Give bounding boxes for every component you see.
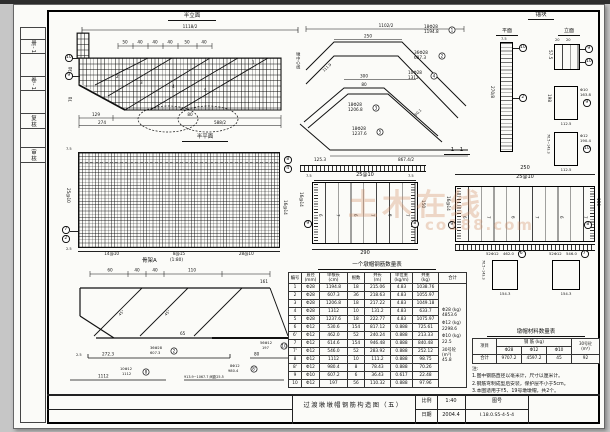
dim-label: 20 <box>555 38 560 42</box>
cell: 4597.2 <box>522 355 547 364</box>
cell: 0.888 <box>391 324 413 332</box>
cell: 980.4 <box>320 364 348 372</box>
bar-mark-circle: 2 <box>62 235 70 243</box>
cell: 6 <box>348 372 365 380</box>
cell: 4.83 <box>391 292 413 300</box>
bar-length: 462.0 <box>503 252 514 256</box>
bar-count: 52Φ12 <box>549 252 562 256</box>
dim-label: 112.5 <box>554 122 578 126</box>
anchor-bar-detail-b <box>554 132 578 166</box>
summary-group: Φ10 (kg)22.5 <box>440 334 465 345</box>
section2-right-ticks <box>590 188 594 240</box>
material-table-title: 墩帽材料数量表 <box>487 329 585 337</box>
cell: 0.888 <box>391 332 413 340</box>
cell: 817.12 <box>365 324 391 332</box>
rebar-table-title: 一个墩帽钢筋数量表 <box>318 262 436 270</box>
titleblock-top-line <box>47 394 600 396</box>
cell: Φ12 <box>302 364 320 372</box>
cell: 946.48 <box>365 340 391 348</box>
bar-mark-circle: 4 <box>433 74 436 79</box>
scale-value: 1:40 <box>437 399 465 405</box>
view-title-half-elevation: 半立面 <box>168 13 216 21</box>
section-bar-mark: 7 <box>583 216 588 219</box>
cell: 462.0 <box>320 332 348 340</box>
dim-label: 270/8 <box>490 86 494 98</box>
section1-teeth-strip <box>300 165 426 172</box>
drawing-no-value: I.18.0.S5-4-5-4 <box>466 413 528 418</box>
dim-label: 16@14 <box>446 196 450 211</box>
cell: 1038.76 <box>413 284 439 292</box>
angle-label: 45° <box>164 309 171 316</box>
cell: Φ10 <box>302 372 320 380</box>
cell: 0.888 <box>391 380 413 388</box>
cell: 4.83 <box>391 300 413 308</box>
margin-stamp-label: 审核 <box>29 149 37 162</box>
view-title-anchor-elevation: 立面 <box>558 29 580 36</box>
bar-mark-circle: 3 <box>375 106 378 111</box>
dim-label: 154.3 <box>492 292 518 296</box>
bar-count: 56Φ12 <box>260 341 272 345</box>
dim-label: 112.5 <box>554 168 578 172</box>
cell: 614.6 <box>320 340 348 348</box>
cell: 111.2 <box>365 356 391 364</box>
bar-mark-circle: 2 <box>519 94 527 102</box>
bar-mark-circle: 9 <box>65 72 73 80</box>
dim-total: 1118/2 <box>183 24 198 29</box>
col-header: 合计 <box>439 273 467 284</box>
dim-label: 40 <box>152 268 158 273</box>
section2-bar-marks: 676767 <box>462 200 588 234</box>
col-header: 直径 (mm) <box>302 273 320 284</box>
bar-length: 546.0 <box>566 252 577 256</box>
cell: 607.2 <box>320 372 348 380</box>
cell: 215.06 <box>365 284 391 292</box>
section-bar-mark: 6 <box>353 214 358 217</box>
cell: 4.83 <box>391 308 413 316</box>
titleblock-mid-line <box>47 409 292 410</box>
bar-length: 190.4 <box>580 139 591 143</box>
cell: 18 <box>348 300 365 308</box>
summary-cell: Φ28 (kg)4853.6Φ12 (kg)2298.6Φ10 (kg)22.5… <box>439 284 467 388</box>
date-label: 日期 <box>416 413 437 419</box>
cell: 222.77 <box>365 316 391 324</box>
bar-length: 1206.8 <box>348 107 363 112</box>
cell: Φ28 <box>302 292 320 300</box>
col-subheader: Φ10 <box>547 347 572 355</box>
bent-bar-details: 1102/2 250 300 80 867.4/2 125.3 111.9 50… <box>298 22 478 162</box>
dim-label: 125.3 <box>314 157 326 162</box>
margin-cell <box>20 162 46 423</box>
note-item: 1.图中钢筋直径以毫米计，尺寸以厘米计。 <box>472 373 569 380</box>
bar-mark-circle: 8 <box>584 221 592 229</box>
col-header: 单根长 (cm) <box>320 273 348 284</box>
row-label: 合计 <box>473 355 497 364</box>
cell: 131.2 <box>365 308 391 316</box>
bar-mark-circle: 9 <box>583 99 591 107</box>
elevation-drawing: 1118/2 50 40 40 40 50 40 2 3 4 5 1 30 70… <box>60 22 310 148</box>
view-title-half-plan: 半平面 <box>182 134 228 142</box>
cell: 1049.18 <box>413 300 439 308</box>
dim-label: 290 <box>348 251 382 257</box>
dim-label: 76.5~143.3 <box>481 260 484 280</box>
cell: 213.33 <box>413 332 439 340</box>
dim-line <box>314 180 416 181</box>
cell: 4.83 <box>391 284 413 292</box>
bar-length: 607.3 <box>150 351 160 355</box>
cell: 725.61 <box>413 324 439 332</box>
margin-stamp: 卷-1 <box>20 76 46 91</box>
cell: 0.888 <box>391 348 413 356</box>
angle-label: 45° <box>118 309 125 316</box>
cell: 0.888 <box>391 356 413 364</box>
col-header: 30号砼 (m³) <box>572 339 600 355</box>
col-header: 共长 (m) <box>365 273 391 284</box>
dim-label: 250 <box>505 166 545 172</box>
margin-cell <box>20 128 46 148</box>
bar-mark-circle: 9 <box>585 45 593 53</box>
dim-label: 20 <box>566 38 571 42</box>
dim-label: 40 <box>137 40 143 45</box>
dim-label: 25@10 <box>66 188 70 203</box>
bar-mark-circle: 8' <box>252 367 256 372</box>
cell: 252.12 <box>413 348 439 356</box>
section2-teeth-strip <box>455 244 595 251</box>
anchor-seat-outline <box>77 33 89 58</box>
cell: 5 <box>289 316 302 324</box>
col-header: 共重 (kg) <box>413 273 439 284</box>
dim-label: 1112 <box>98 374 109 379</box>
section2-left-ticks <box>457 188 461 240</box>
dim-label: 150 <box>421 200 425 208</box>
bar-mark: 4 <box>172 84 175 89</box>
bar-length: 163.8 <box>580 93 591 97</box>
dim-label: 40 <box>134 268 140 273</box>
cell: 10 <box>348 356 365 364</box>
dim-label: 198 <box>547 94 551 102</box>
bar-mark-circle: 10 <box>585 58 593 66</box>
cell: 217.22 <box>365 300 391 308</box>
dim-label: 80 <box>187 112 193 117</box>
cell: 8 <box>348 364 365 372</box>
cell: 1055.97 <box>413 292 439 300</box>
bar-mark-circle: 10 <box>281 344 287 349</box>
cell: 0.888 <box>391 364 413 372</box>
cell: 92 <box>572 355 600 364</box>
cell: 1075.97 <box>413 316 439 324</box>
col-header: 单位重 (kg/m) <box>391 273 413 284</box>
cell: 7 <box>289 340 302 348</box>
bar-mark: 2 <box>116 74 119 79</box>
dim-label: 7.5 <box>66 147 72 151</box>
dim-label: 60 <box>107 268 113 273</box>
bent-bar-1 <box>306 42 466 106</box>
summary-group: Φ28 (kg)4853.6 <box>440 308 465 319</box>
cell: 1112 <box>320 356 348 364</box>
titleblock-divider <box>292 394 293 424</box>
bar-mark-circle: 6' <box>518 250 526 258</box>
col-header: 根数 <box>348 273 365 284</box>
bar-mark-circle: 7 <box>62 226 70 234</box>
section-bar-mark: 7 <box>535 216 540 219</box>
bar-mark-circle: 8 <box>284 156 292 164</box>
col-subheader: Φ28 <box>497 347 522 355</box>
cell: Φ28 <box>302 308 320 316</box>
dim-label: 65 <box>180 331 186 336</box>
section-bar-mark: 7 <box>370 214 375 217</box>
cell: 7' <box>289 348 302 356</box>
dim-label: 110 <box>188 268 196 273</box>
bar-mark-circle: 5 <box>379 130 382 135</box>
cell: 10 <box>289 380 302 388</box>
notes-block: 注: 1.图中钢筋直径以毫米计，尺寸以厘米计。 2.钢筋弯制成型后安装，保护层不… <box>472 366 569 396</box>
cell: 1 <box>289 284 302 292</box>
cell: 98.75 <box>413 356 439 364</box>
dim-label: 50.1 <box>414 108 423 116</box>
dim-label: 57.5 <box>548 50 552 59</box>
cell: 607.3 <box>320 292 348 300</box>
cell: 1312 <box>320 308 348 316</box>
binding-margin-strip: 册-1卷-1复核审核 <box>20 28 46 423</box>
cell: 4 <box>289 308 302 316</box>
cell: 0.888 <box>391 340 413 348</box>
cell: Φ12 <box>302 380 320 388</box>
dim-label: 161 <box>260 279 268 284</box>
cell: 52 <box>348 332 365 340</box>
section-bar-mark: 7 <box>486 216 491 219</box>
section1-left-ticks <box>314 184 318 242</box>
bar-mark-circle: 2 <box>441 54 444 59</box>
cell: 18 <box>348 284 365 292</box>
cell: 218.63 <box>365 292 391 300</box>
cell: Φ12 <box>302 324 320 332</box>
skeleton-drawing: 60 40 40 110 161 45° 45° 65 2.5 272.3 36… <box>62 256 294 398</box>
titleblock-divider <box>528 394 529 424</box>
dim-label: 2.5 <box>76 353 82 357</box>
summary-group: Φ12 (kg)2298.6 <box>440 321 465 332</box>
section2-bar-detail-2 <box>552 260 580 290</box>
bar-mark: 3 <box>140 80 143 85</box>
dim-label: 40 <box>201 40 207 45</box>
bar-length: 1112 <box>122 372 131 376</box>
cell: 70.26 <box>413 364 439 372</box>
bar-mark-circle: 9 <box>448 221 456 229</box>
bar-length: 1194.8 <box>424 29 439 34</box>
cell: 9707.2 <box>497 355 522 364</box>
date-value: 2004.4 <box>437 413 465 419</box>
bar-length: 980.4 <box>228 369 239 373</box>
cell: 78.43 <box>365 364 391 372</box>
cell: 546.0 <box>320 348 348 356</box>
rebar-row: 1Φ281194.818215.064.831038.76Φ28 (kg)485… <box>289 284 467 292</box>
bar-mark: 5 <box>204 88 207 93</box>
cell: 1206.8 <box>320 300 348 308</box>
bar-count: 36Φ28 <box>150 346 163 350</box>
cell: 2 <box>289 292 302 300</box>
bent-bar-5 <box>300 124 468 150</box>
dim-label: 7.5 <box>501 37 507 41</box>
dim-label: 250 <box>364 34 372 39</box>
section-bar-mark: 6 <box>388 214 393 217</box>
cell: 283.92 <box>365 348 391 356</box>
cell: 530.6 <box>320 324 348 332</box>
cell: 840.48 <box>413 340 439 348</box>
margin-stamp-label: 复核 <box>29 115 37 128</box>
dim-label: 76.5~143.3 <box>546 134 549 154</box>
bar-count: 52Φ12 <box>486 252 499 256</box>
cell: 154 <box>348 340 365 348</box>
drawing-page: { "sheet": { "watermark1": "土木在线", "wate… <box>0 0 610 432</box>
section-bar-mark: 6 <box>462 216 467 219</box>
anchor-elev-top <box>554 44 580 70</box>
dim-label: 80 <box>254 352 260 357</box>
bar-mark-circle: 10 <box>65 54 73 62</box>
dim-label: 274 <box>98 120 106 125</box>
cell: 52 <box>348 348 365 356</box>
dim-label: 150 <box>596 198 600 206</box>
cell: 18 <box>348 316 365 324</box>
section-label-1-1: 1—1 <box>444 147 470 155</box>
cell: 8 <box>289 356 302 364</box>
bar-mark-circle: 8 <box>145 370 148 375</box>
cell: 110.32 <box>365 380 391 388</box>
leader-line <box>70 231 78 232</box>
titleblock-mid-line <box>415 409 528 410</box>
cell: 22.48 <box>413 372 439 380</box>
bar-count: 10Φ12 <box>120 367 132 371</box>
dim-label: 867.4/2 <box>398 157 414 162</box>
cell: 6 <box>289 324 302 332</box>
bar-length: 197 <box>262 346 269 350</box>
cell: Φ12 <box>302 340 320 348</box>
dim-label: 913.9~1067.7 间距25.5 <box>184 374 224 379</box>
cell: 36 <box>348 292 365 300</box>
dim-label: 154.3 <box>552 292 580 296</box>
cell: Φ12 <box>302 348 320 356</box>
bar-mark-circle: 10 <box>583 145 591 153</box>
section-bar-mark: 7 <box>405 214 410 217</box>
bar-mark-circle: 8 <box>411 220 419 228</box>
cell: 4.83 <box>391 316 413 324</box>
bar-mark: 1 <box>252 60 255 65</box>
dim-label: 70 <box>68 96 73 102</box>
cell: 633.7 <box>413 308 439 316</box>
bar-mark-circle: 10 <box>519 44 527 52</box>
bar-count: 8Φ12 <box>230 364 240 368</box>
margin-stamp: 册-1 <box>20 39 46 54</box>
material-quantity-table: 项目 钢 筋 (kg) 30号砼 (m³) Φ28 Φ12 Φ10 合计 970… <box>472 338 600 364</box>
dim-label: 300 <box>360 74 368 79</box>
bar-mark-circle: 4 <box>284 165 292 173</box>
margin-cell <box>20 53 46 77</box>
dim-label: 50 <box>184 40 190 45</box>
leader-line <box>72 76 80 77</box>
cell: Φ28 <box>302 300 320 308</box>
drawing-title: 过渡墩墩帽钢筋构造图（五） <box>294 402 413 409</box>
cell: 0.617 <box>391 372 413 380</box>
note-item: 2.钢筋弯制成型后安装，保护层不小于5cm。 <box>472 381 569 388</box>
dim-label: 272.3 <box>102 352 114 357</box>
cell: 197 <box>320 380 348 388</box>
dim-label: 40 <box>152 40 158 45</box>
col-header: 项目 <box>473 339 497 355</box>
bar-mark-circle: 1 <box>451 28 454 33</box>
cell: 36.43 <box>365 372 391 380</box>
anchor-plan-bar <box>500 42 513 152</box>
cell: Φ28 <box>302 284 320 292</box>
drawing-no-label: 图号 <box>466 399 528 405</box>
section2-bar-detail-1 <box>492 260 518 290</box>
margin-cell <box>20 90 46 114</box>
scale-label: 比例 <box>416 399 437 405</box>
dim-label: 129 <box>92 112 100 117</box>
cell: 3 <box>289 300 302 308</box>
bar-mark-circle: 9 <box>304 220 312 228</box>
section1-right-ticks <box>411 184 415 242</box>
cell: 97.96 <box>413 380 439 388</box>
cell: 1237.6 <box>320 316 348 324</box>
plan-rebar-mesh <box>78 152 280 248</box>
dim-label: 80 <box>361 82 367 87</box>
bar-length: 1237.6 <box>352 131 367 136</box>
cell: 1194.8 <box>320 284 348 292</box>
cell: 6' <box>289 332 302 340</box>
dim-label: 25@10 <box>336 173 394 179</box>
dim-label: 111.9 <box>322 62 333 72</box>
section-bar-mark: 6 <box>510 216 515 219</box>
view-title-anchor-block: 锚块 <box>528 12 554 20</box>
margin-stamp: 审核 <box>20 147 46 163</box>
margin-stamp: 复核 <box>20 113 46 129</box>
cell: 240.24 <box>365 332 391 340</box>
cell: 45 <box>547 355 572 364</box>
col-header: 编号 <box>289 273 302 284</box>
dim-label: 7.5 <box>306 174 312 178</box>
cell: Φ12 <box>302 332 320 340</box>
section-bar-mark: 7 <box>335 214 340 217</box>
dim-label: 7.5 <box>408 174 414 178</box>
cell: 56 <box>348 380 365 388</box>
margin-stamp-label: 卷-1 <box>29 77 37 91</box>
notes-head: 注: <box>472 366 569 373</box>
dim-label: 2.5 <box>66 247 72 251</box>
bar-length: 1312 <box>408 75 419 80</box>
cell: 10 <box>348 308 365 316</box>
view-title-anchor-plan: 平面 <box>496 29 518 36</box>
leader-line <box>72 58 80 59</box>
cell: 9 <box>289 372 302 380</box>
bar-length: 607.3 <box>414 55 426 60</box>
section-bar-mark: 6 <box>559 216 564 219</box>
cell: 8' <box>289 364 302 372</box>
cell: Φ12 <box>302 356 320 364</box>
bar-mark-circle: 2 <box>173 349 176 354</box>
bar-mark-circle: 7' <box>581 250 589 258</box>
summary-group: 30号砼 (m³)45.8 <box>440 348 465 364</box>
dim-label: 1102/2 <box>379 23 394 28</box>
dim-label: 40 <box>167 40 173 45</box>
section1-bar-marks: 676767 <box>318 196 410 234</box>
margin-stamp-label: 册-1 <box>29 40 37 54</box>
rebar-quantity-table: 编号 直径 (mm) 单根长 (cm) 根数 共长 (m) 单位重 (kg/m)… <box>288 272 467 388</box>
col-header: 钢 筋 (kg) <box>497 339 572 347</box>
col-subheader: Φ12 <box>522 347 547 355</box>
dim-label: 50 <box>122 40 128 45</box>
section-bar-mark: 6 <box>318 214 323 217</box>
cell: Φ28 <box>302 316 320 324</box>
dim-label: 25@10 <box>505 175 545 181</box>
dim-label: 16@14 <box>283 200 287 215</box>
plan-dashed-bar <box>80 162 278 163</box>
